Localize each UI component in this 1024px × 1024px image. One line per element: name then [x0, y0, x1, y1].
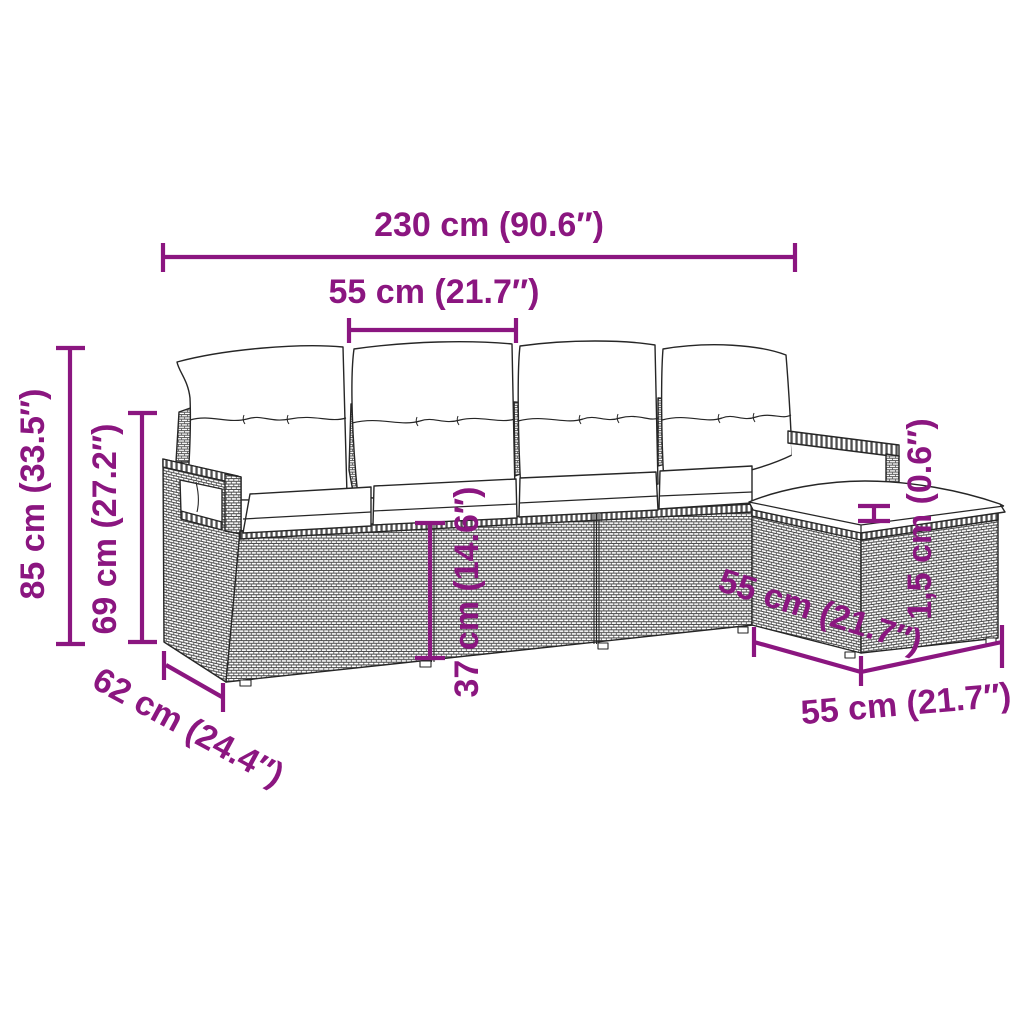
svg-text:85 cm (33.5″): 85 cm (33.5″): [14, 389, 52, 600]
svg-text:69 cm (27.2″): 69 cm (27.2″): [86, 424, 124, 635]
svg-text:230 cm (90.6″): 230 cm (90.6″): [374, 206, 604, 244]
svg-text:37 cm (14.6″): 37 cm (14.6″): [448, 487, 486, 698]
svg-text:55 cm (21.7″): 55 cm (21.7″): [329, 273, 540, 311]
svg-text:1,5 cm (0.6″): 1,5 cm (0.6″): [901, 418, 939, 620]
